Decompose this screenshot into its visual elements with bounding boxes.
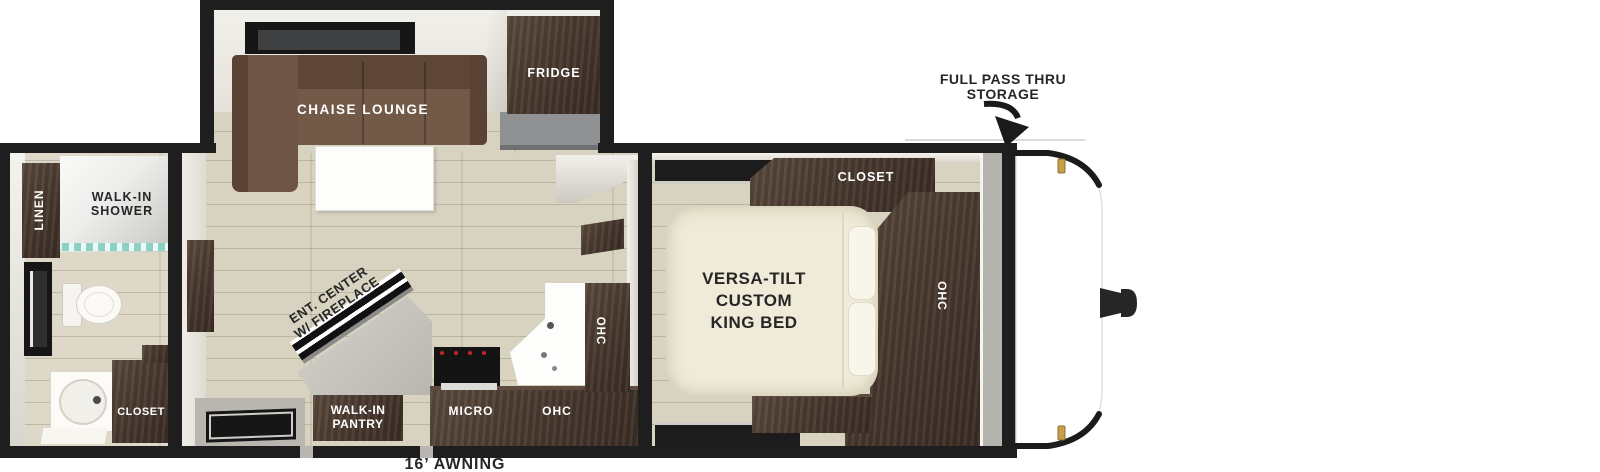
range-tray [441,383,497,390]
rv-floorplan: WALK-INSHOWER LINEN CLOSET CHAISE LOUNGE… [0,0,1600,472]
living-wall-cabinet [187,240,214,332]
chaise-lounge-chaise [232,55,298,192]
main-wall-top-right [598,143,1017,153]
toilet-bowl [76,285,122,324]
range-knob-4 [482,351,486,355]
bathroom-closet-label: CLOSET [110,406,172,419]
micro-label: MICRO [431,405,511,419]
storage-arrow-tail [984,104,1018,118]
fridge-counter [500,112,600,150]
bed-foot-cabinet [752,394,872,433]
sink-faucet-icon [547,322,554,329]
awning-label: 16’ AWNING [380,456,530,472]
slideout-wall-right [600,0,614,153]
entry-door-mat [206,408,296,442]
cap-trim-bottom [1012,414,1099,446]
bedroom-closet-label: CLOSET [806,170,926,184]
sink-drain-icon [541,352,547,358]
table [315,146,434,211]
pass-thru-storage-callout: FULL PASS THRUSTORAGE [903,72,1103,102]
bath-mat [41,428,108,444]
slideout-window-glass [258,30,400,50]
hitch-coupler-icon [1100,288,1137,318]
cap-trim-top [1012,153,1099,185]
range-knob-1 [440,351,444,355]
chaise-armrest [470,55,487,145]
slideout-wall-left [200,0,214,153]
pantry-label: WALK-INPANTRY [331,404,386,432]
bathroom-window-glass [30,271,47,347]
bed-pillow-bottom [848,302,876,376]
bedroom-ohc-label: OHC [932,266,948,326]
linen-label: LINEN [33,180,49,240]
range-cooktop [434,347,500,386]
bathroom-closet-upper [142,345,168,363]
range-knob-3 [468,351,472,355]
fridge [507,16,600,114]
vanity [50,371,116,432]
bathroom-window [24,262,52,356]
main-wall-top-left [0,143,216,153]
slideout-wall-wedge [487,10,507,112]
bedroom-divider-wall [638,153,652,446]
bed-label: VERSA-TILTCUSTOMKING BED [664,268,844,334]
bathroom-divider-wall [168,153,182,446]
shower-glass [62,243,168,251]
sink-soap-icon [552,366,557,371]
bottom-wall-gap-left [300,446,313,458]
toilet-seat [84,292,114,317]
front-cap-body [1016,152,1102,447]
chaise-label: CHAISE LOUNGE [288,102,438,118]
range-knob-2 [454,351,458,355]
shower-label: WALK-INSHOWER [62,190,182,219]
bathroom-closet [112,360,168,443]
clearance-marker-top [1058,159,1065,173]
kitchen-ohc-base-label: OHC [517,405,597,419]
faucet-icon [93,396,101,404]
slideout-wall-top [200,0,614,10]
walk-in-pantry: WALK-INPANTRY [313,395,403,441]
main-wall-right [1002,143,1017,458]
clearance-marker-bottom [1058,426,1065,440]
bed-pillow-top [848,226,876,300]
fridge-label: FRIDGE [504,66,604,80]
kitchen-ohc-upper-label: OHC [590,301,606,361]
main-wall-left [0,143,10,458]
slideout-window [245,22,415,54]
